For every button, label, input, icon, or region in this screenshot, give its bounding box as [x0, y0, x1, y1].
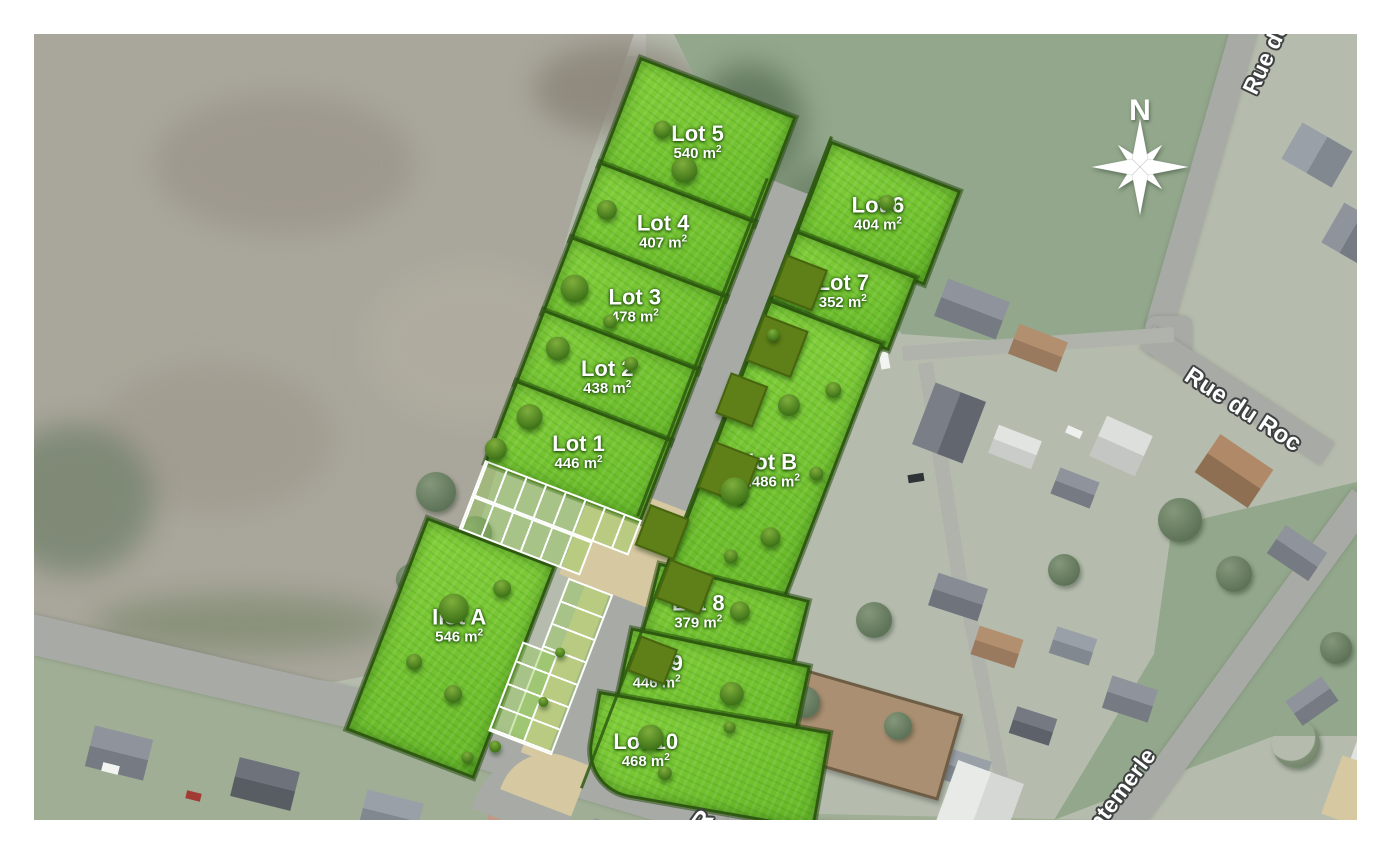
house: [928, 573, 988, 621]
tree: [884, 712, 912, 740]
lot-area: 352 m2: [816, 294, 869, 311]
compass-star-icon: [1085, 100, 1195, 222]
lot-name: Lot 6: [851, 193, 904, 216]
house: [1009, 706, 1058, 746]
courtyard: [1321, 755, 1357, 820]
tree: [1158, 498, 1202, 542]
lot-name: Lot 5: [671, 122, 724, 145]
lot-name: Lot 4: [637, 212, 690, 235]
tree: [487, 739, 503, 755]
lot-name: Lot 3: [608, 285, 661, 308]
lot-area: 446 m2: [552, 455, 605, 472]
lot-area: 404 m2: [851, 216, 904, 233]
house: [1049, 626, 1098, 666]
tree: [1216, 556, 1252, 592]
compass-rose: N: [1085, 100, 1195, 222]
house: [1050, 467, 1099, 508]
lot-area: 379 m2: [672, 615, 725, 632]
garden-hedge-circle: [1272, 720, 1320, 768]
lot-area: 438 m2: [581, 380, 634, 397]
lot-area: 546 m2: [432, 629, 486, 646]
car: [1065, 425, 1083, 439]
house: [988, 425, 1042, 469]
lot-name: Lot 1: [552, 432, 605, 455]
house: [1321, 203, 1357, 264]
site-plan-map: Lot 5 540 m2 Lot 4 407 m2 Lot 3 478 m2 L…: [34, 34, 1357, 820]
house: [1281, 122, 1352, 187]
lot-area: 407 m2: [637, 235, 690, 252]
street-label-rue-du-roc: Rue du Roc: [1179, 362, 1306, 458]
field-texture: [154, 94, 414, 234]
tree: [1320, 632, 1352, 664]
tree: [1048, 554, 1080, 586]
house: [1195, 434, 1274, 508]
house: [1089, 416, 1153, 477]
